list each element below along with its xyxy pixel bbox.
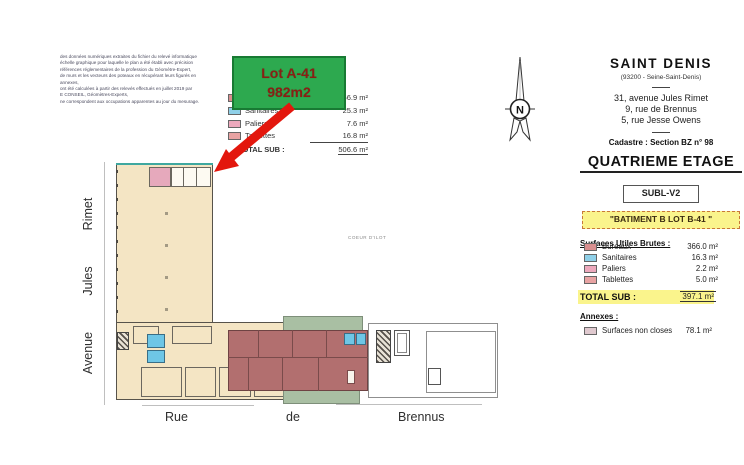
partition bbox=[183, 167, 184, 187]
compass-north-icon: N bbox=[498, 55, 542, 147]
street-label-brennus: Brennus bbox=[398, 410, 445, 424]
partition bbox=[282, 358, 283, 391]
legend-value: 16.8 m² bbox=[343, 131, 368, 140]
panel-version-box: SUBL-V2 bbox=[623, 185, 699, 203]
column-dot bbox=[165, 308, 168, 311]
duct-opening bbox=[347, 370, 355, 384]
skylight-inner bbox=[397, 333, 407, 353]
panel-total-value: 397.1 m² bbox=[680, 291, 716, 302]
panel-chip-tablettes bbox=[584, 276, 597, 284]
legend-total-value: 506.6 m² bbox=[338, 145, 368, 155]
panel-address: 5, rue Jesse Owens bbox=[580, 115, 742, 126]
panel-chip-sanitaires bbox=[584, 254, 597, 262]
panel-address: 9, rue de Brennus bbox=[580, 104, 742, 115]
panel-batiment-box: "BATIMENT B LOT B-41 " bbox=[582, 211, 740, 229]
panel-chip-nonclos bbox=[584, 327, 597, 335]
street-edge-left bbox=[104, 162, 105, 405]
green-court-south bbox=[283, 390, 360, 404]
legend-value: 7.6 m² bbox=[347, 119, 368, 128]
street-label-de: de bbox=[286, 410, 300, 424]
column-dot bbox=[165, 244, 168, 247]
panel-cadastre: Cadastre : Section BZ n° 98 bbox=[580, 138, 742, 147]
panel-floor-title: QUATRIEME ETAGE bbox=[580, 154, 742, 173]
column-dot bbox=[165, 276, 168, 279]
panel-row-value: 2.2 m² bbox=[696, 264, 718, 273]
teal-roofline bbox=[116, 163, 213, 165]
panel-row-value: 366.0 m² bbox=[687, 242, 718, 251]
street-edge-bottom-2 bbox=[336, 404, 482, 405]
panel-row-label: Paliers bbox=[602, 264, 626, 273]
wing-room bbox=[141, 367, 182, 397]
panel-annex-title: Annexes : bbox=[580, 312, 618, 321]
green-court-north bbox=[283, 316, 363, 331]
panel-dept: (93200 - Seine-Saint-Denis) bbox=[580, 74, 742, 81]
legend-value: 25.3 m² bbox=[343, 106, 368, 115]
street-label-rimet: Rimet bbox=[81, 184, 95, 244]
sanitary-room bbox=[344, 333, 355, 345]
divider bbox=[652, 132, 670, 133]
panel-annex-value: 78.1 m² bbox=[686, 326, 712, 335]
scanned-floorplan-page: des données numériques extraites du fich… bbox=[0, 0, 744, 465]
partition bbox=[318, 358, 319, 391]
panel-row-label: Tablettes bbox=[602, 275, 633, 284]
street-label-jules: Jules bbox=[81, 251, 95, 311]
panel-annex-label: Surfaces non closes bbox=[602, 326, 672, 335]
street-label-rue: Rue bbox=[165, 410, 188, 424]
info-panel: SAINT DENIS (93200 - Seine-Saint-Denis) … bbox=[580, 54, 742, 354]
partition bbox=[248, 358, 249, 391]
panel-row-value: 5.0 m² bbox=[696, 275, 718, 284]
column-dot bbox=[165, 212, 168, 215]
partition bbox=[326, 330, 327, 357]
shaft-hatch bbox=[117, 332, 129, 350]
panel-row-label: Sanitaires bbox=[602, 253, 637, 262]
partition bbox=[258, 330, 259, 357]
red-pointer-arrow-icon bbox=[200, 98, 310, 188]
panel-city: SAINT DENIS bbox=[580, 56, 742, 71]
divider bbox=[652, 87, 670, 88]
legend-total-rule bbox=[310, 142, 368, 143]
stair-core-pink bbox=[149, 167, 171, 187]
compass-letter: N bbox=[516, 105, 524, 117]
shaft-hatch bbox=[376, 330, 391, 363]
panel-chip-paliers bbox=[584, 265, 597, 273]
panel-total-label: TOTAL SUB : bbox=[580, 292, 636, 302]
corridor-line bbox=[228, 357, 368, 358]
lot-callout-title: Lot A-41 bbox=[234, 64, 344, 83]
wing-room bbox=[172, 326, 212, 344]
wing-room bbox=[185, 367, 216, 397]
panel-row-value: 16.3 m² bbox=[692, 253, 718, 262]
partition bbox=[292, 330, 293, 357]
panel-chip-bureaux bbox=[584, 243, 597, 251]
panel-total-band: TOTAL SUB : 397.1 m² bbox=[578, 290, 714, 304]
skylight bbox=[428, 368, 441, 385]
sanitary-room bbox=[356, 333, 366, 345]
partition bbox=[196, 167, 197, 187]
panel-row-label: Bureaux bbox=[602, 242, 631, 251]
panel-address: 31, avenue Jules Rimet bbox=[580, 93, 742, 104]
sanitary-room bbox=[147, 350, 165, 363]
courtyard-label: COEUR D'ILOT bbox=[348, 235, 386, 240]
sanitary-room bbox=[147, 334, 165, 348]
street-label-avenue: Avenue bbox=[81, 323, 95, 383]
street-edge-bottom-1 bbox=[142, 405, 254, 406]
